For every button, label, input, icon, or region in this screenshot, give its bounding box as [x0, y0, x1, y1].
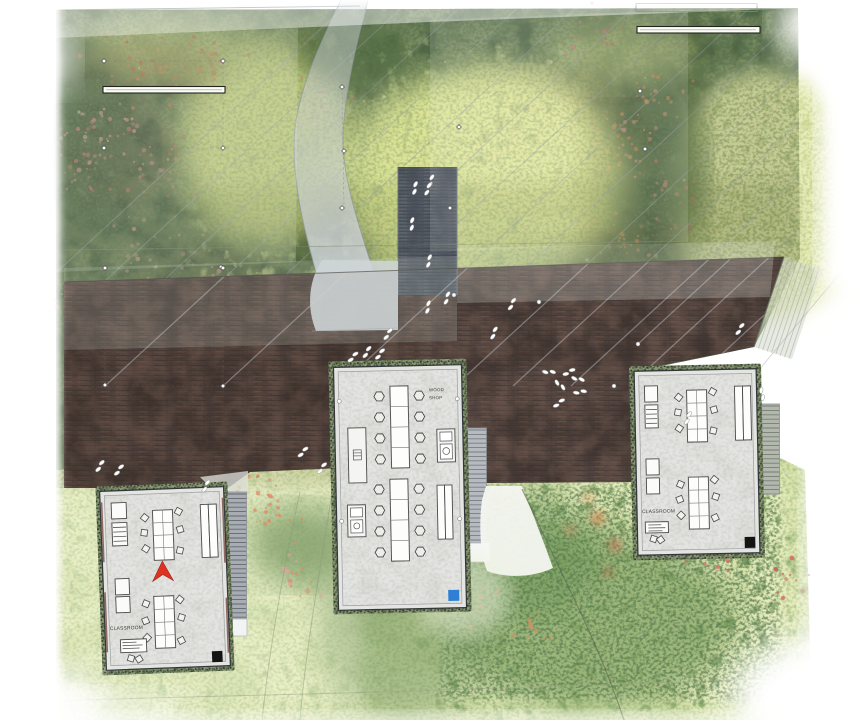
svg-text:WOOD: WOOD	[429, 387, 444, 392]
svg-text:CLASSROOM: CLASSROOM	[642, 508, 675, 515]
svg-text:SHOP: SHOP	[429, 395, 442, 400]
